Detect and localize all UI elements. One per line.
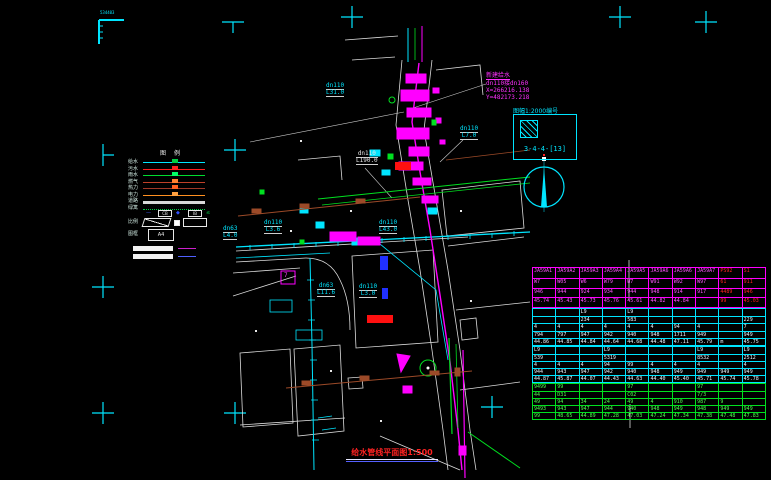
frame-row-label: 图框 [128,230,138,237]
sheet-index-code: 3-4-4-[13] [514,145,576,153]
legend-symbol: ≤ [206,210,210,216]
table-cell: 234 [580,317,603,323]
table-cell: 45.87 [556,376,579,382]
table-cell: 914 [673,289,696,298]
table-cell: JA59A6 [673,268,696,278]
legend-item: 道路 [128,199,208,205]
legend-item-label: 绿篱 [128,204,138,211]
table-cell: JA59A3 [580,268,603,278]
scale-parallelogram-icon [142,218,172,227]
table-cell [696,317,719,323]
pipe-label: dn63L11.6 [317,283,335,297]
table-cell: W92 [673,279,696,288]
table-cell: 44.82 [649,298,672,307]
table-cell: 794 [533,332,556,338]
tree-center-dot [427,367,430,370]
table-cell: 47.48 [719,413,742,419]
scale-bar [133,254,173,259]
table-cell: JA59A5 [626,268,649,278]
table-cell: 4 [580,362,603,368]
pipe-label-line: L43.0 [379,227,397,234]
table-cell: 45.61 [626,298,649,307]
table-cell: 4 [649,399,672,405]
table-cell: L9 [743,347,765,354]
legend-line-marker [172,159,178,163]
table-cell [673,317,696,323]
proposed-main-pipe [281,26,466,478]
pipe-label-line: L3.0 [359,291,377,298]
table-cell [603,317,626,323]
table-cell: 44.89 [580,413,603,419]
table-row: W7W05W6W79W7W91W92W9761911 [533,278,765,288]
table-cell [603,309,626,316]
table-cell: 940 [626,406,649,412]
table-cell: 948 [649,332,672,338]
table-cell: 4 [556,324,579,330]
table-cell: JA59A4 [603,268,626,278]
legend-symbol-box: IB [188,210,202,217]
table-row: 9499999797 [533,384,765,391]
cad-canvas[interactable]: 新建给水dn110接dn160X=266216.138Y=482173.218 … [0,0,771,480]
table-cell: 940 [626,369,649,375]
table-cell: C02 [626,392,649,398]
table-cell: W91 [649,279,672,288]
table-cell: 9493 [533,406,556,412]
pipe-label-line: L3.6 [264,227,282,234]
table-cell: 943 [556,369,579,375]
pipe-label-line: 534403 [100,11,114,15]
table-cell: 943 [556,406,579,412]
table-cell: 947 [580,332,603,338]
table-section: L9L9234583229444444944779479794794294094… [532,308,766,346]
table-cell [719,347,742,354]
blue-markers [380,256,388,299]
table-cell [719,362,742,368]
leader-lines [250,84,486,198]
table-cell: 4 [626,324,649,330]
table-cell: 47.38 [696,413,719,419]
table-cell: 44.64 [603,339,626,345]
table-cell: 4 [533,362,556,368]
table-cell [743,384,765,391]
legend-item: 热力 [128,186,208,192]
table-cell [649,347,672,354]
pipe-label-line: L4.0 [223,233,237,240]
scale-rect-icon [183,218,207,227]
annotation-line: 新建给水 [486,72,510,80]
table-cell: 94 [673,324,696,330]
legend-header: 图例 [160,148,188,157]
table-cell: JA59A1 [533,268,556,278]
scale-row-label: 比例 [128,218,138,225]
table-row: 944943947942940948949949949949 [533,368,765,375]
table-cell: 4 [696,362,719,368]
table-cell: 949 [743,406,765,412]
legend-item: 燃气 [128,180,208,186]
table-cell: 583 [626,317,649,323]
table-cell: 44.84 [673,298,696,307]
hatch-square-icon [520,120,538,138]
table-cell: PS92 [719,268,742,278]
table-cell [603,392,626,398]
table-cell: 94 [603,362,626,368]
pipe-label-line: L11.6 [317,290,335,297]
table-cell: 947 [580,369,603,375]
table-cell: 4489 [719,289,742,298]
table-cell: 45.75 [743,339,765,345]
table-cell [673,384,696,391]
legend-blue-line [178,256,196,257]
table-cell: 44.85 [556,339,579,345]
frame-size-box: A4 [148,229,174,241]
table-cell: L9 [533,347,556,354]
table-cell: 2512 [743,355,765,361]
table-cell [719,309,742,316]
table-cell: 47.03 [626,413,649,419]
pipe-label: dn63L4.0 [223,226,237,240]
annotation-line: Y=482173.218 [486,94,529,101]
table-cell [556,317,579,323]
legend-item: 雨水 [128,173,208,179]
table-cell [649,309,672,316]
table-cell: 97 [696,384,719,391]
table-cell: 946 [743,289,765,298]
table-cell: 934 [603,289,626,298]
table-cell: 949 [719,406,742,412]
table-row: 9469449249349449489149174489946 [533,288,765,298]
table-cell: 94 [556,399,579,405]
table-cell [743,399,765,405]
table-cell: 948 [649,406,672,412]
table-row: 7947979479429409481711949949 [533,331,765,338]
table-cell [556,355,579,361]
table-cell: 942 [603,369,626,375]
legend-item: 电力 [128,193,208,199]
table-cell: L9 [603,347,626,354]
legend-magenta-line [178,248,196,249]
table-cell: 45.74 [719,376,742,382]
table-cell [649,392,672,398]
table-cell [673,355,696,361]
table-cell [673,309,696,316]
table-cell: L9 [696,347,719,354]
table-cell: JA59A2 [556,268,579,278]
table-cell: L9 [580,309,603,316]
legend-item: 给水 [128,160,208,166]
annotation-line: dn110接dn160 [486,80,529,87]
legend-symbol-box: CB [158,210,172,217]
legend-line-marker [172,192,178,196]
table-cell [580,392,603,398]
table-cell: 44.48 [649,339,672,345]
table-cell [719,332,742,338]
table-cell [719,355,742,361]
table-cell: W79 [603,279,626,288]
table-cell: 944 [556,289,579,298]
table-cell: 9499 [533,384,556,391]
legend-item: 污水 [128,167,208,173]
table-cell: 949 [696,369,719,375]
table-cell: 949 [743,369,765,375]
legend-symbol: ◆ [176,210,180,216]
pipe-data-table[interactable]: JA59A1JA59A2JA59A3JA59A4JA59A5JA59A6JA59… [532,267,768,420]
table-cell: 924 [580,289,603,298]
table-cell: 539 [533,355,556,361]
table-cell: 917 [696,289,719,298]
pipe-label-line: L7.0 [460,133,478,140]
table-cell: 99 [556,384,579,391]
table-cell [743,392,765,398]
table-cell: 944 [603,406,626,412]
table-cell: 4 [649,362,672,368]
table-cell: S1 [743,268,765,278]
table-cell: 34 [580,399,603,405]
legend-symbol: — [146,210,151,216]
table-cell [580,355,603,361]
table-cell: 949 [673,406,696,412]
table-cell: 44 [533,392,556,398]
table-cell: 949 [719,369,742,375]
table-cell: 44.40 [649,376,672,382]
table-cell: 49 [533,399,556,405]
table-row: 499434244949109879 [533,398,765,405]
pipe-label: dn110L7.0 [460,126,478,140]
pipe-label-line: L190.0 [356,158,378,165]
table-cell: 45.73 [580,298,603,307]
sheet-index-box[interactable]: 3-4-4-[13] [513,114,577,160]
table-cell [649,355,672,361]
pipe-label-line: L31.0 [326,90,344,97]
table-cell [696,309,719,316]
pipe-label: dn110L43.0 [379,220,397,234]
table-row: 44D31C027/3 [533,391,765,398]
table-cell: 49 [626,399,649,405]
table-row: 9493943947944940948949948949949 [533,405,765,412]
table-cell [743,309,765,316]
corner-mark-icon [99,20,124,44]
pipe-label: 534403 [100,11,114,15]
table-cell: 47.83 [743,413,765,419]
table-cell: 9 [719,399,742,405]
table-cell: 45.78 [743,376,765,382]
table-row: 44494994444 [533,361,765,368]
table-cell: 48.65 [556,413,579,419]
table-cell: 1711 [673,332,696,338]
table-cell: 4 [649,324,672,330]
table-cell: 4 [743,362,765,368]
table-row: 44.8745.8744.0744.4344.6344.4045.4045.71… [533,375,765,382]
table-cell: 44.07 [580,376,603,382]
table-cell [719,392,742,398]
legend-line-swatch [143,201,205,204]
table-cell: 99 [626,362,649,368]
table-cell: 45.43 [556,298,579,307]
table-cell: 8532 [696,355,719,361]
table-cell [649,317,672,323]
table-cell: JA59A6 [649,268,672,278]
table-cell: 45.74 [533,298,556,307]
table-cell: 44.84 [580,339,603,345]
table-cell: 97 [626,384,649,391]
table-cell: 5319 [603,355,626,361]
table-cell: 44.63 [626,376,649,382]
table-cell: 948 [649,289,672,298]
table-cell [533,317,556,323]
table-cell: 4 [603,324,626,330]
table-cell [719,384,742,391]
table-cell: 44.87 [533,376,556,382]
table-cell: 944 [533,369,556,375]
table-cell: 47.11 [673,339,696,345]
table-cell: 946 [533,289,556,298]
table-cell [580,384,603,391]
table-cell: 44.68 [626,339,649,345]
table-cell: 949 [743,332,765,338]
table-row: L9L9L9L9 [533,347,765,354]
table-cell [719,324,742,330]
table-section: L9L9L9L953953198532251244494994444944943… [532,346,766,383]
table-cell: 947 [580,406,603,412]
table-cell [626,355,649,361]
table-cell: W7 [626,279,649,288]
table-cell: W6 [580,279,603,288]
table-cell: 45.71 [696,376,719,382]
table-cell: 910 [673,399,696,405]
table-cell: 7 [743,324,765,330]
table-cell: 44.86 [533,339,556,345]
table-cell: 940 [626,332,649,338]
table-cell [603,384,626,391]
table-cell [696,298,719,307]
table-cell: 44.43 [603,376,626,382]
table-row: 9948.6544.8947.2847.0347.2447.3447.3847.… [533,412,765,419]
legend-line-marker [172,166,178,170]
table-cell: 24 [603,399,626,405]
scale-square-icon [174,220,180,226]
legend-line-marker [172,172,178,176]
table-cell: 942 [603,332,626,338]
table-cell: 987 [696,399,719,405]
table-cell: 229 [743,317,765,323]
table-section: JA59A1JA59A2JA59A3JA59A4JA59A5JA59A6JA59… [532,267,766,308]
table-cell: 948 [649,369,672,375]
table-cell: m [719,339,742,345]
table-row: 44.8644.8544.8444.6444.6844.4847.1145.79… [533,338,765,345]
table-cell: 4 [533,324,556,330]
pipe-label-line: 7 [284,273,288,279]
table-cell: 45.03 [743,298,765,307]
coordinate-annotation: 新建给水dn110接dn160X=266216.138Y=482173.218 [486,72,529,101]
pipe-label: 7 [284,273,288,279]
table-cell: JA59A7 [696,268,719,278]
table-row: 4444449447 [533,323,765,330]
table-cell: 4 [580,324,603,330]
table-row: 539531985322512 [533,354,765,361]
legend-line-marker [172,179,178,183]
table-cell: 7/3 [696,392,719,398]
drawing-title: 给水管线平面图1:500 [348,447,436,458]
pipe-label: dn110L190.0 [356,151,378,165]
table-cell: 99 [533,413,556,419]
table-cell: 949 [673,369,696,375]
scale-bar [133,246,173,251]
table-cell: 911 [743,279,765,288]
title-underline-2 [346,461,438,462]
table-row: JA59A1JA59A2JA59A3JA59A4JA59A5JA59A6JA59… [533,268,765,278]
pipe-label: dn110L3.0 [359,284,377,298]
table-cell: W7 [533,279,556,288]
table-row: 45.7445.4345.7345.7645.6144.8244.849945.… [533,297,765,307]
table-cell: 797 [556,332,579,338]
table-row: L9L9 [533,309,765,316]
table-cell: 47.28 [603,413,626,419]
annotation-line: X=266216.138 [486,87,529,94]
table-cell [556,309,579,316]
table-cell: W97 [696,279,719,288]
table-cell [580,347,603,354]
table-cell: 61 [719,279,742,288]
table-cell [673,347,696,354]
table-section: 949999979744D31C027/34994342449491098799… [532,383,766,420]
table-cell [673,392,696,398]
table-cell: W05 [556,279,579,288]
pipe-label: dn110L31.0 [326,83,344,97]
table-row: 234583229 [533,316,765,323]
table-cell [556,347,579,354]
table-cell: 47.34 [673,413,696,419]
title-underline [346,459,438,460]
table-cell: 99 [719,298,742,307]
table-cell: 944 [626,289,649,298]
legend-line-marker [172,185,178,189]
table-cell [649,384,672,391]
table-cell: 47.24 [649,413,672,419]
table-cell: 45.40 [673,376,696,382]
table-cell: 949 [696,332,719,338]
table-cell [719,317,742,323]
table-cell [533,309,556,316]
table-cell: 45.76 [603,298,626,307]
table-cell: 4 [556,362,579,368]
table-cell: 4 [673,362,696,368]
pipe-label: dn110L3.6 [264,220,282,234]
table-cell: 4 [696,324,719,330]
table-cell: D31 [556,392,579,398]
table-cell: L9 [626,309,649,316]
table-cell: 948 [696,406,719,412]
table-cell [626,347,649,354]
table-cell: 45.79 [696,339,719,345]
